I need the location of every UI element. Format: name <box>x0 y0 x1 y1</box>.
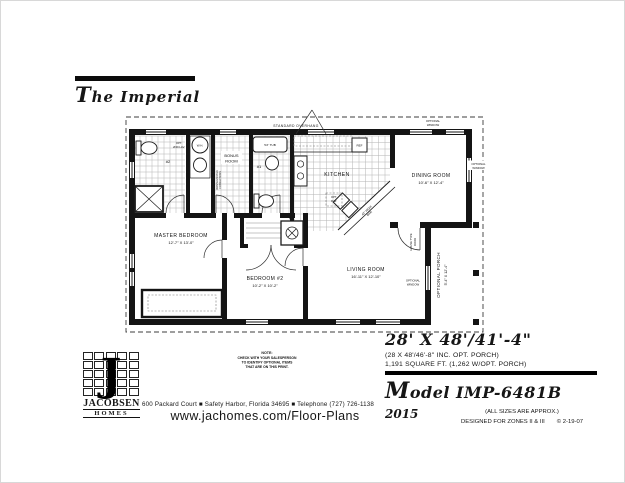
range <box>294 156 307 186</box>
model-initial: M <box>385 378 410 404</box>
specs-block: 28' X 48'/41'-4" (28 X 48'/46'-8" INC. O… <box>385 330 599 428</box>
note-title: NOTE: <box>261 351 272 355</box>
specs-bottom-row: 2015 (ALL SIZES ARE APPROX.) DESIGNED FO… <box>385 407 599 428</box>
room-label-master: MASTER BEDROOM <box>154 233 208 239</box>
toilet-bath1 <box>254 194 274 208</box>
room-label-kitchen: KITCHEN <box>324 172 349 178</box>
room-dims-living: 16'-11" X 12'-10" <box>351 274 381 279</box>
floor-plan-sheet: The Imperial <box>0 0 625 483</box>
ac-unit: A.C. <box>281 217 303 246</box>
shower-bath2 <box>135 186 163 212</box>
note-line-2: TO IDENTIFY OPTIONAL ITEMS <box>242 361 293 365</box>
shelf-label: SHELF <box>211 165 215 174</box>
room-label-living: LIVING ROOM <box>347 267 385 273</box>
logo-wordmark-homes: HOMES <box>83 410 140 418</box>
wd-label-2: CONNECTIONS <box>219 171 222 189</box>
note-line-3: THAT ARE ON THIS PRINT. <box>245 365 288 369</box>
dw-label-1: OPT. <box>331 195 337 199</box>
tub-label: 54" TUB <box>264 143 276 147</box>
house-door-label-1: HOUSE TYPE <box>409 233 413 250</box>
sizes-approx-note: (ALL SIZES ARE APPROX.) <box>445 407 599 417</box>
ac-label: A.C. <box>289 217 295 221</box>
specs-rule <box>385 371 597 375</box>
note-block: NOTE: CHECK WITH YOUR SALESPERSON TO IDE… <box>238 351 297 369</box>
room-label-dining: DINING ROOM <box>412 173 451 179</box>
box-bay-window <box>142 290 222 317</box>
opt-lav-label-2: 2ND LAV. <box>173 145 185 149</box>
upper-cabinets <box>294 136 352 146</box>
toilet-bath2 <box>136 141 157 155</box>
room-label-bedroom2: BEDROOM #2 <box>247 276 284 282</box>
website-link[interactable]: www.jachomes.com/Floor-Plans <box>156 409 374 423</box>
overhang-label: STANDARD OVERHANG <box>273 124 319 128</box>
optwin-top-2: WINDOW <box>427 123 440 127</box>
model-year: 2015 <box>385 407 445 428</box>
optwin-living-2: WINDOW <box>407 283 420 287</box>
lav-bath1 <box>266 156 279 170</box>
optwin-right-2: WINDOW <box>472 166 485 170</box>
refrigerator: REF <box>352 138 367 152</box>
copyright-date: © 2-19-07 <box>557 419 583 425</box>
room-dims-porch: 5'-4" X 12'-4" <box>444 264 448 285</box>
plan-size-sub2: 1,191 SQUARE FT. (1,262 W/OPT. PORCH) <box>385 361 599 368</box>
model-rest: odel IMP-6481B <box>410 383 562 402</box>
plan-size-sub1: (28 X 48'/46'-8" INC. OPT. PORCH) <box>385 352 599 359</box>
jacobsen-logo: J JACOBSEN HOMES <box>83 352 140 418</box>
room-label-bonus-1: BONUS <box>224 153 239 158</box>
company-address: 600 Packard Court ■ Safety Harbor, Flori… <box>142 401 374 408</box>
ref-label: REF <box>357 143 363 147</box>
house-door-label-2: DOOR <box>413 238 417 246</box>
plan-size: 28' X 48'/41'-4" <box>385 330 599 349</box>
room-label-bonus-2: ROOM <box>225 159 237 164</box>
bath2-number: #2 <box>166 159 171 164</box>
note-line-1: CHECK WITH YOUR SALESPERSON <box>238 356 297 360</box>
bath1-number: #1 <box>257 164 262 169</box>
model-name: Model IMP-6481B <box>385 378 599 404</box>
zones-row: DESIGNED FOR ZONES II & III© 2-19-07 <box>445 417 599 427</box>
zones-note: DESIGNED FOR ZONES II & III <box>461 419 545 425</box>
room-dims-dining: 10'-6" X 12'-4" <box>418 180 444 185</box>
porch-posts <box>473 222 479 325</box>
logo-j-letter: J <box>83 350 139 398</box>
dw-label-2: D.W. <box>331 199 337 203</box>
tub-bath1: 54" TUB <box>253 137 287 152</box>
lav-bath2 <box>194 158 207 172</box>
room-dims-bedroom2: 10'-2" X 10'-2" <box>252 283 278 288</box>
room-label-porch: OPTIONAL PORCH <box>436 252 441 298</box>
room-dims-master: 12'-7" X 13'-0" <box>168 240 194 245</box>
specs-fine-print: (ALL SIZES ARE APPROX.) DESIGNED FOR ZON… <box>445 407 599 428</box>
water-heater-label: W.H. <box>197 143 204 147</box>
